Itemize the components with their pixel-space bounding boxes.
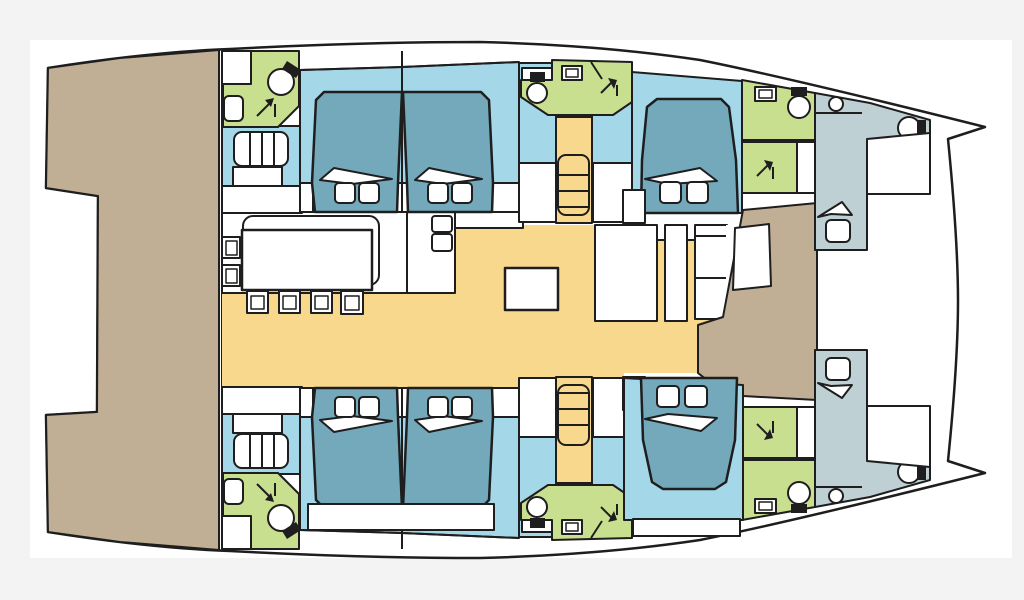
- plan-svg: [0, 0, 1024, 600]
- nightstand-c-mirror: [492, 388, 519, 417]
- pillow-2b-mirror: [452, 397, 472, 417]
- bath-aft-box: [222, 51, 251, 84]
- bath-fwd-sink: [755, 87, 776, 101]
- bath-fwd-toilet-tank: [791, 87, 807, 96]
- under-bed-strip-stbd: [308, 504, 494, 530]
- dining-chair-1-inner: [251, 296, 264, 309]
- pillow-3b: [687, 182, 708, 203]
- dining-chair-2-inner: [283, 296, 296, 309]
- dining-table: [242, 230, 372, 290]
- pillow-3b-stbd: [685, 386, 707, 407]
- pillow-1a-mirror: [335, 397, 355, 417]
- pillow-1b: [359, 183, 379, 203]
- coffee-table: [505, 268, 558, 310]
- counter-box-2: [432, 234, 452, 251]
- landing-ext-box: [623, 190, 645, 223]
- galley-unit-right: [695, 225, 727, 319]
- bed-aft-1: [312, 92, 402, 212]
- crew-pillow: [826, 220, 850, 242]
- bath-mid-sink-mirror: [562, 520, 582, 534]
- bath-mid-toilet: [527, 83, 547, 103]
- bath-mid-toilet-tank-mirror: [530, 518, 545, 528]
- pillow-3a: [660, 182, 681, 203]
- pillow-2a-mirror: [428, 397, 448, 417]
- fwd-cabinet-stbd: [633, 519, 740, 536]
- bath-fwd-side-box-mirror: [797, 407, 815, 458]
- pillow-3a-stbd: [657, 386, 679, 407]
- pillow-2a: [428, 183, 448, 203]
- bath-mid-toilet-tank: [530, 72, 545, 82]
- crew-pillow-mirror: [826, 358, 850, 380]
- bath-aft-cabinet-mirror: [224, 479, 243, 504]
- crew-sink-mirror: [829, 489, 843, 503]
- anchor-locker-mirror: [867, 406, 930, 467]
- bath-fwd-toilet-tank-mirror: [791, 504, 807, 513]
- galley-unit-left: [595, 225, 657, 321]
- catamaran-floorplan: [0, 0, 1024, 600]
- head-chair-2-inner: [226, 269, 237, 283]
- bath-fwd-sink-mirror: [755, 499, 776, 513]
- crew-sink: [829, 97, 843, 111]
- dining-chair-4-inner: [345, 296, 359, 310]
- bath-fwd-toilet: [788, 96, 810, 118]
- bath-mid-toilet-mirror: [527, 497, 547, 517]
- pillow-1a: [335, 183, 355, 203]
- nightstand-a: [300, 183, 313, 212]
- pillow-2b: [452, 183, 472, 203]
- bed-aft-1-mirror: [312, 388, 402, 508]
- head-chair-1-inner: [226, 241, 237, 255]
- aft-corner-box-mirror: [222, 387, 302, 414]
- bath-fwd-side-box: [797, 142, 815, 193]
- stair-landing-left-mirror: [519, 378, 557, 437]
- aft-corner-box: [222, 186, 302, 213]
- pillow-1b-mirror: [359, 397, 379, 417]
- stair-landing-left: [519, 163, 557, 222]
- nightstand-a-mirror: [300, 388, 313, 417]
- bath-aft-box-mirror: [222, 516, 251, 549]
- dining-chair-3-inner: [315, 296, 328, 309]
- cockpit-table: [733, 224, 771, 290]
- bath-mid-sink: [562, 66, 582, 80]
- bath-fwd-toilet-mirror: [788, 482, 810, 504]
- galley-unit-mid: [665, 225, 687, 321]
- bath-aft-cabinet: [224, 96, 243, 121]
- nightstand-c: [492, 183, 519, 212]
- counter-box-1: [432, 216, 452, 232]
- anchor-locker: [867, 133, 930, 194]
- salon-wall-strip: [455, 211, 523, 228]
